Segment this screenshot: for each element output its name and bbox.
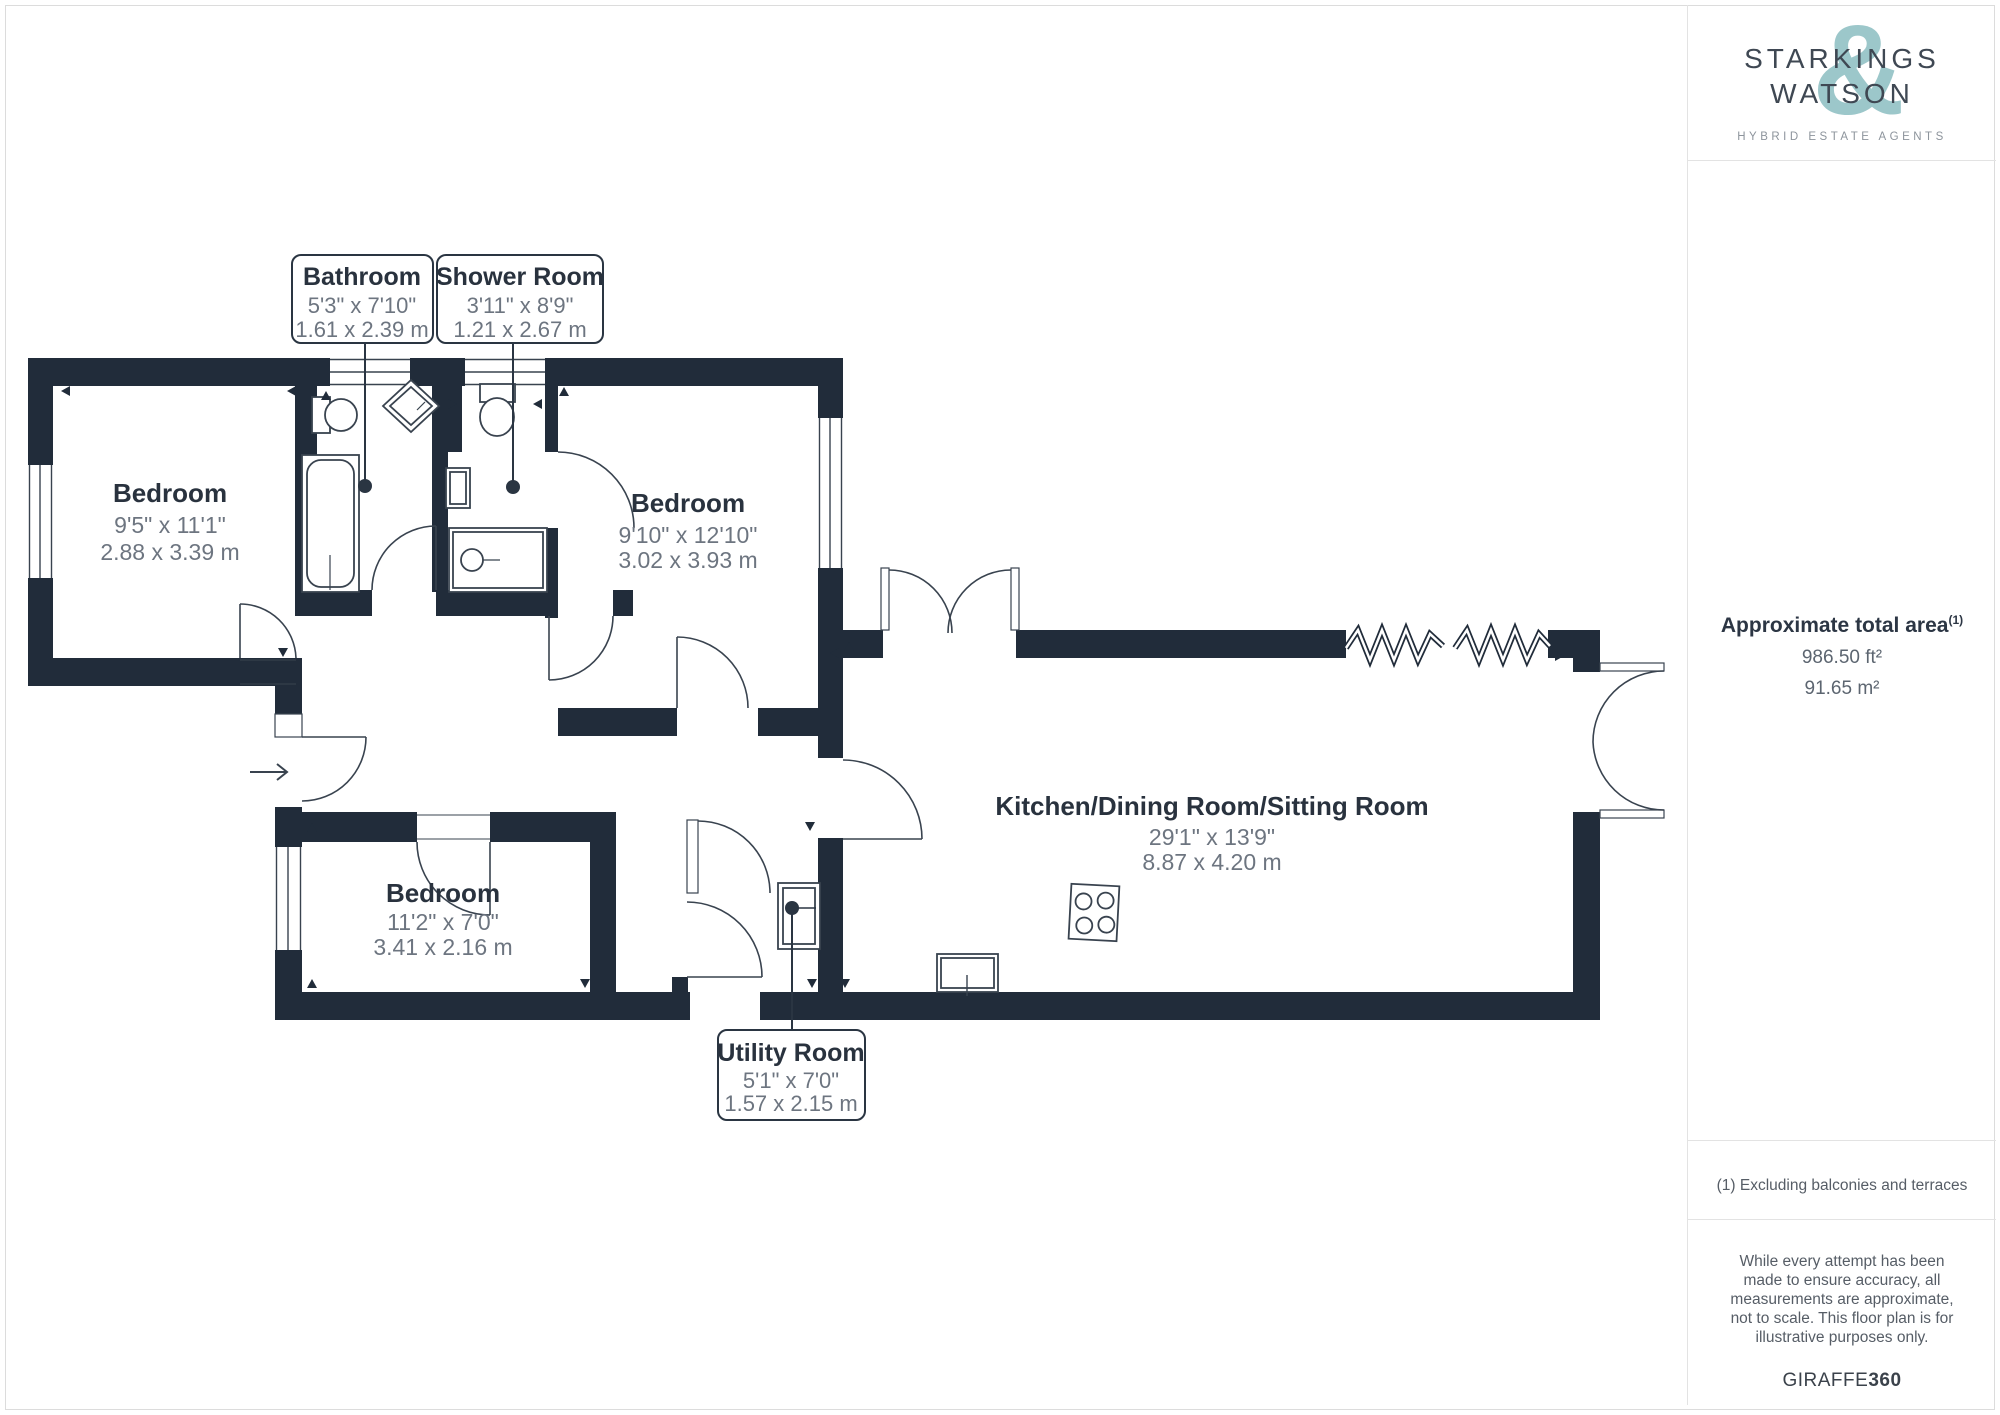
entry-arrow <box>250 764 287 780</box>
toilet-shower-room <box>480 384 515 436</box>
divider <box>1688 1219 1996 1220</box>
hob <box>1069 884 1120 941</box>
window-bedroom2-right <box>818 418 843 568</box>
label-bedroom1: Bedroom 9'5" x 11'1" 2.88 x 3.39 m <box>100 478 239 565</box>
label-bedroom3: Bedroom 11'2" x 7'0" 3.41 x 2.16 m <box>373 878 512 960</box>
svg-text:5'3" x 7'10": 5'3" x 7'10" <box>308 293 416 318</box>
divider <box>1688 1140 1996 1141</box>
svg-text:3'11" x 8'9": 3'11" x 8'9" <box>467 293 574 318</box>
entry-door <box>275 714 366 801</box>
footnote-marker: (1) <box>1948 613 1963 627</box>
window-bedroom1-left <box>28 465 53 578</box>
area-footnote: (1) Excluding balconies and terraces <box>1688 1147 1996 1225</box>
window-top-bathroom <box>330 358 410 386</box>
svg-text:9'10" x 12'10": 9'10" x 12'10" <box>619 522 758 548</box>
total-area-m: 91.65 m² <box>1688 678 1996 700</box>
toilet-bathroom <box>312 397 357 433</box>
total-area-title: Approximate total area(1) <box>1688 613 1996 638</box>
sidebar: & STARKINGS WATSON HYBRID ESTATE AGENTS … <box>1687 5 1996 1405</box>
svg-text:2.88 x 3.39 m: 2.88 x 3.39 m <box>100 539 239 565</box>
label-bedroom2: Bedroom 9'10" x 12'10" 3.02 x 3.93 m <box>618 488 757 573</box>
door-utility <box>687 820 770 893</box>
svg-text:Bathroom: Bathroom <box>303 263 421 291</box>
washing-machine <box>778 883 820 949</box>
floorplan-page: Bathroom 5'3" x 7'10" 1.61 x 2.39 m Show… <box>0 0 2000 1415</box>
disclaimer-text: While every attempt has been made to ens… <box>1727 1253 1957 1348</box>
svg-text:11'2" x 7'0": 11'2" x 7'0" <box>387 909 499 935</box>
window-bedroom3-left <box>275 847 302 950</box>
disclaimer-block: While every attempt has been made to ens… <box>1688 1253 1996 1392</box>
window-top-shower <box>465 358 545 386</box>
giraffe360-credit: GIRAFFE360 <box>1688 1370 1996 1392</box>
kitchen-sink <box>937 954 998 996</box>
brand-line1: STARKINGS <box>1744 41 1940 76</box>
svg-text:1.61 x 2.39 m: 1.61 x 2.39 m <box>295 317 428 342</box>
basin-shower-room <box>446 468 470 508</box>
svg-text:Utility Room: Utility Room <box>717 1039 864 1067</box>
label-bathroom: Bathroom 5'3" x 7'10" 1.61 x 2.39 m <box>295 263 428 342</box>
french-doors-right <box>1593 663 1664 818</box>
floorplan-drawing: Bathroom 5'3" x 7'10" 1.61 x 2.39 m Show… <box>0 0 1687 1415</box>
svg-text:Kitchen/Dining Room/Sitting Ro: Kitchen/Dining Room/Sitting Room <box>995 791 1428 821</box>
svg-text:Bedroom: Bedroom <box>386 878 500 908</box>
door-bedroom2 <box>558 452 634 528</box>
zigzag-break-lines <box>1346 630 1550 660</box>
door-kitchen-hall <box>843 760 922 839</box>
brand-line2: WATSON <box>1744 76 1940 111</box>
brand-tagline: HYBRID ESTATE AGENTS <box>1688 131 1996 143</box>
total-area-ft: 986.50 ft² <box>1688 647 1996 669</box>
door-shower-room <box>549 616 613 680</box>
svg-text:3.41 x 2.16 m: 3.41 x 2.16 m <box>373 934 512 960</box>
corner-basin <box>383 380 439 432</box>
svg-text:29'1" x 13'9": 29'1" x 13'9" <box>1149 824 1275 850</box>
total-area-block: Approximate total area(1) 986.50 ft² 91.… <box>1688 613 1996 700</box>
svg-text:1.21 x 2.67 m: 1.21 x 2.67 m <box>453 317 586 342</box>
svg-text:Shower Room: Shower Room <box>436 263 604 291</box>
shower-tray <box>449 528 547 592</box>
svg-text:1.57 x 2.15 m: 1.57 x 2.15 m <box>724 1091 857 1116</box>
door-bedroom2-hall <box>677 637 748 708</box>
svg-text:5'1" x 7'0": 5'1" x 7'0" <box>743 1068 839 1093</box>
brand-logo: & STARKINGS WATSON HYBRID ESTATE AGENTS <box>1688 35 1996 143</box>
svg-text:9'5" x 11'1": 9'5" x 11'1" <box>114 512 226 538</box>
divider <box>1688 160 1996 161</box>
svg-text:Bedroom: Bedroom <box>113 478 227 508</box>
svg-text:8.87 x 4.20 m: 8.87 x 4.20 m <box>1142 849 1281 875</box>
french-doors-top <box>881 568 1019 633</box>
bathtub <box>302 455 359 592</box>
svg-text:Bedroom: Bedroom <box>631 488 745 518</box>
label-kitchen: Kitchen/Dining Room/Sitting Room 29'1" x… <box>995 791 1428 875</box>
back-door <box>687 902 762 977</box>
door-bathroom <box>372 526 436 590</box>
svg-text:3.02 x 3.93 m: 3.02 x 3.93 m <box>618 547 757 573</box>
